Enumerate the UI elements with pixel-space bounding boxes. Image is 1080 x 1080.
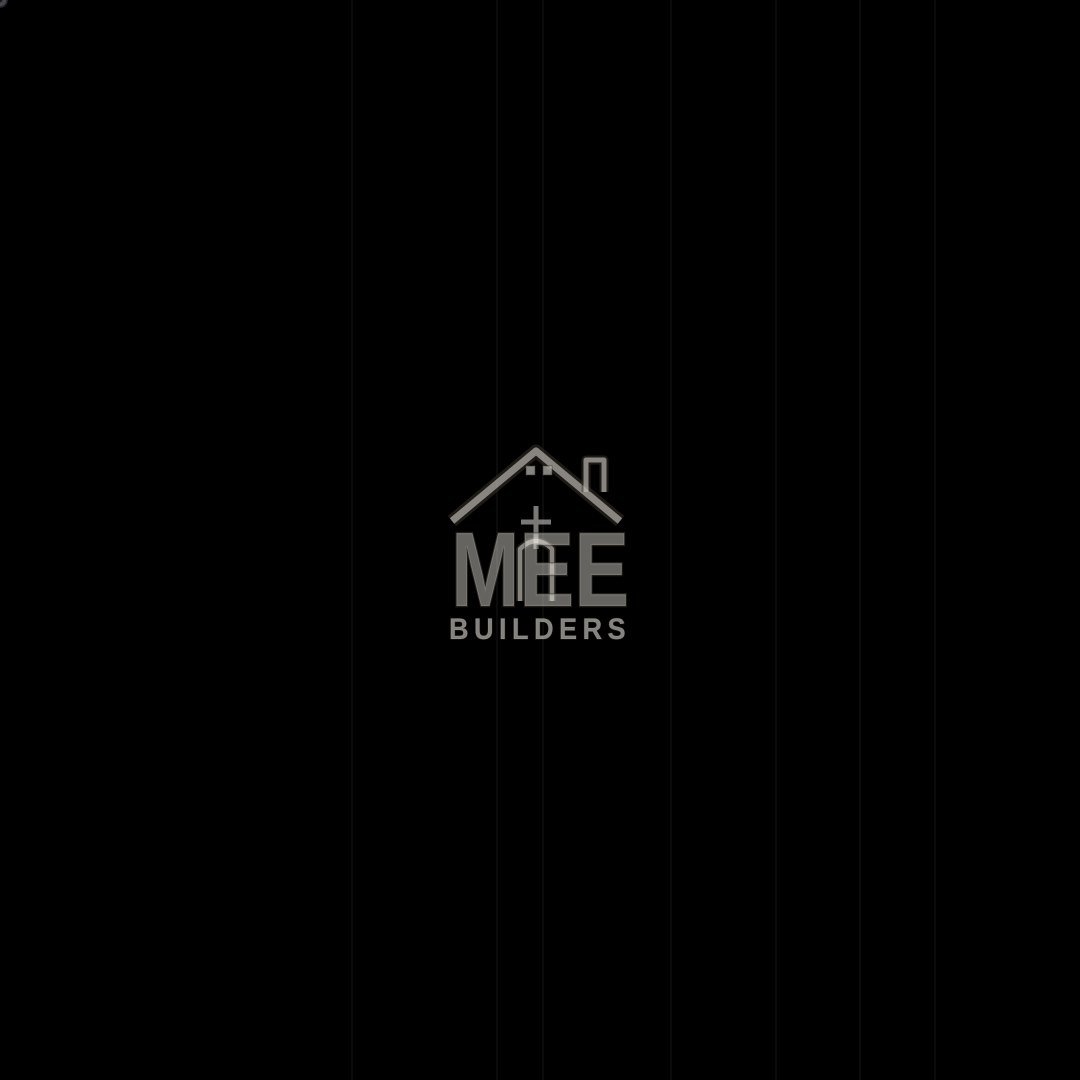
floor-plan-3d-render: MEE BUILDERS [0,0,1080,1080]
watermark-sub-text: BUILDERS [449,613,631,646]
watermark-brand-text: MEE [451,511,629,629]
ceiling-fan-master [0,0,7,7]
watermark: MEE BUILDERS [449,451,631,646]
section-guide-lines [352,0,935,1080]
umlaut-dot-2 [543,466,552,475]
render-viewport: MEE BUILDERS [0,0,1080,1080]
umlaut-dot-1 [526,466,535,475]
